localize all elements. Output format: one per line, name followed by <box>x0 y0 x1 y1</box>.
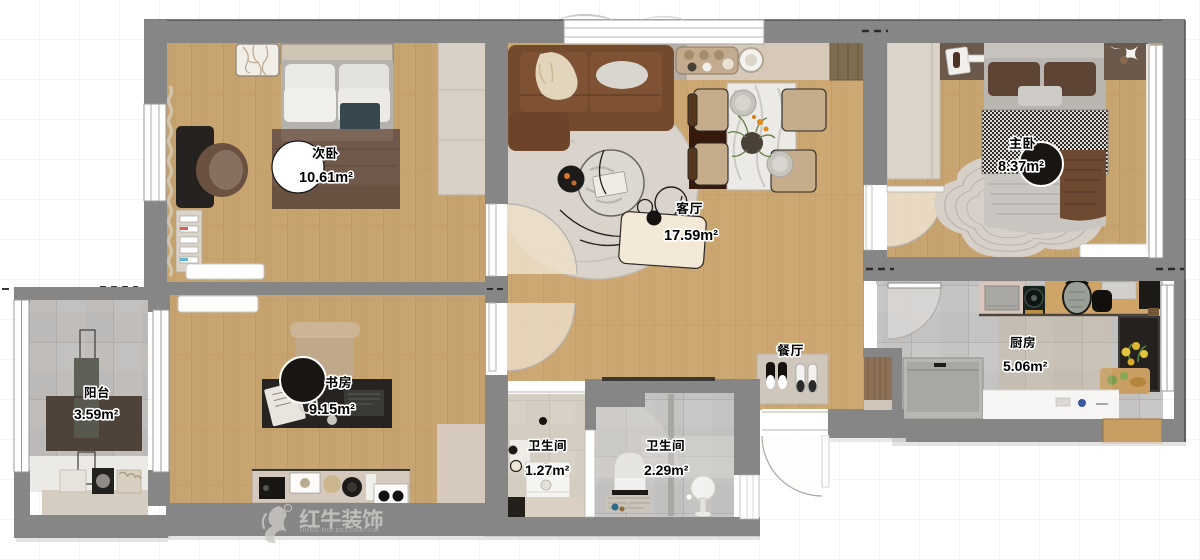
svg-text:9.15m²: 9.15m² <box>309 402 355 418</box>
svg-text:3.59m²: 3.59m² <box>74 406 119 422</box>
svg-text:17.59m²: 17.59m² <box>664 228 718 244</box>
svg-text:1.27m²: 1.27m² <box>525 462 570 478</box>
svg-text:2.29m²: 2.29m² <box>644 462 689 478</box>
svg-text:HONG NIU DECORATION: HONG NIU DECORATION <box>300 528 379 534</box>
svg-text:8.37m²: 8.37m² <box>998 159 1044 175</box>
svg-text:10.61m²: 10.61m² <box>299 170 353 186</box>
svg-text:5.06m²: 5.06m² <box>1003 358 1048 374</box>
